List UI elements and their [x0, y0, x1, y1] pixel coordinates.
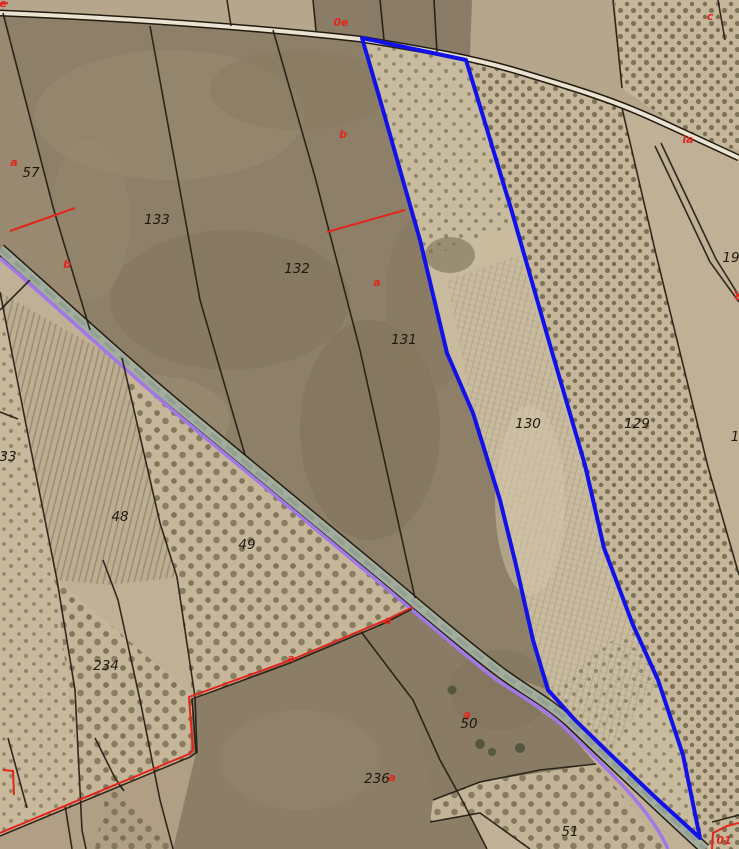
parcel-label-133-1: 133 [144, 212, 170, 228]
subparcel-label-a-7: a [463, 708, 470, 721]
parcel-label-33-12: 33 [0, 449, 17, 465]
parcel-label-234-8: 234 [93, 658, 119, 674]
subparcel-label-c-5: c [707, 10, 714, 23]
subparcel-label-a-0: a [10, 156, 17, 169]
parcel-label-1-14: 1 [731, 429, 739, 445]
parcel-label-49-7: 49 [238, 537, 255, 553]
subparcel-label-a-4: a [373, 276, 380, 289]
map-viewport[interactable]: 571331321311301294849234236505133191 ab0… [0, 0, 739, 849]
parcel-label-19-13: 19 [722, 250, 739, 266]
subparcel-label-a-9: a [384, 614, 391, 627]
parcel-label-236-9: 236 [364, 771, 390, 787]
subparcel-label-a-10: a [388, 771, 395, 784]
parcel-label-132-2: 132 [284, 261, 310, 277]
subparcel-label-c-13: c [735, 290, 739, 303]
parcel-label-131-3: 131 [391, 332, 417, 348]
subparcel-label-a-8: a [287, 652, 294, 665]
subparcel-label-b-3: b [339, 128, 347, 141]
parcel-label-130-4: 130 [515, 416, 541, 432]
parcel-label-48-6: 48 [111, 509, 128, 525]
parcel-label-57-0: 57 [22, 165, 40, 181]
cadastral-aerial-map[interactable]: 571331321311301294849234236505133191 ab0… [0, 0, 739, 849]
subparcel-label-b-1: b [63, 258, 71, 271]
subparcel-label-0e-2: 0e [333, 16, 349, 29]
subparcel-label-01-11: 01 [716, 834, 731, 847]
parcel-label-129-5: 129 [624, 416, 650, 432]
parcel-label-51-11: 51 [561, 824, 578, 840]
subparcel-label-la-6: la [682, 133, 693, 146]
subparcel-label-e-12: e [0, 0, 7, 10]
